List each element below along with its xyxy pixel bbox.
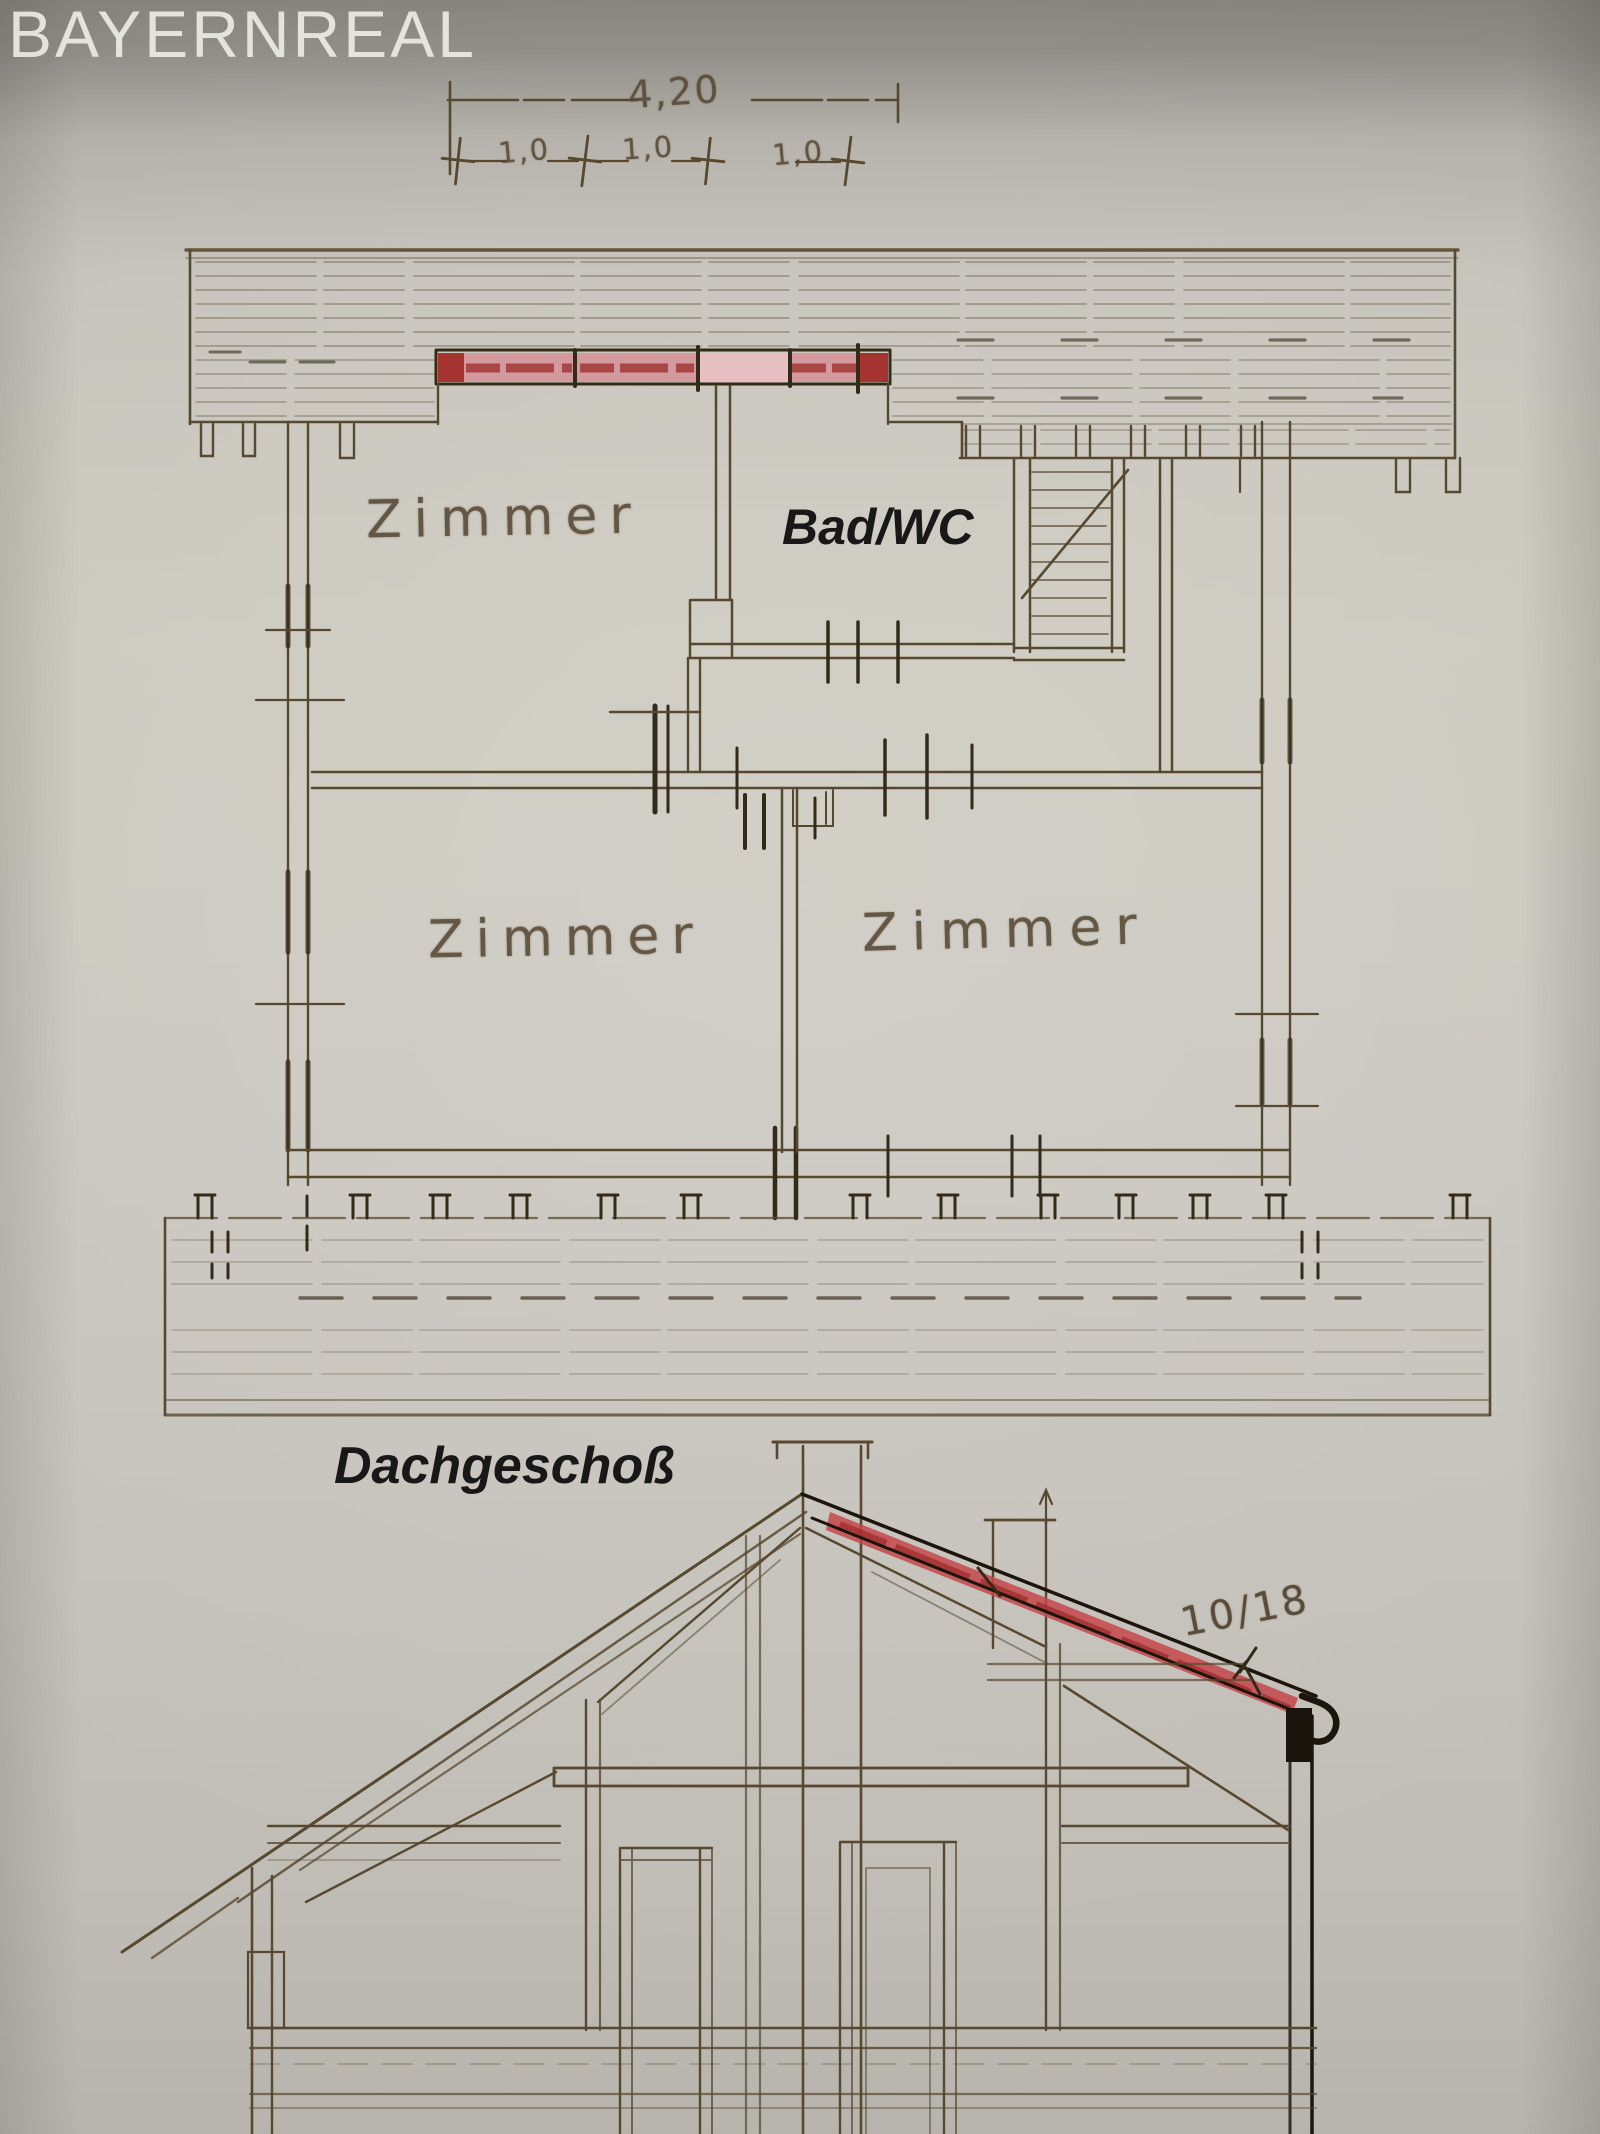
dimension-segment-2: 1,0 [621, 129, 675, 167]
roof-section-drawing [122, 1442, 1336, 2134]
dimension-segment-3: 1,0 [771, 134, 826, 172]
chimney [773, 1442, 872, 2134]
floor-title-dachgeschoss: Dachgeschoß [334, 1436, 675, 1496]
room-label-zimmer-right: Zimmer [861, 896, 1151, 964]
balcony-band [165, 1195, 1490, 1415]
room-label-bad-wc: Bad/WC [782, 498, 974, 556]
scanned-floorplan-page: BAYERNREAL 4,20 1,0 1,0 1,0 Zimmer Bad/W… [0, 0, 1600, 2134]
staircase [1014, 458, 1172, 772]
dimension-segment-1: 1,0 [497, 132, 552, 170]
room-label-zimmer-top: Zimmer [365, 486, 643, 551]
room-label-zimmer-left: Zimmer [427, 906, 705, 971]
watermark-bayernreal: BAYERNREAL [8, 0, 477, 72]
baluster-row [195, 1195, 1470, 1218]
red-highlight-wall [436, 345, 890, 424]
dimension-total-label: 4,20 [627, 67, 722, 117]
floorplan-drawing [0, 0, 1600, 2134]
